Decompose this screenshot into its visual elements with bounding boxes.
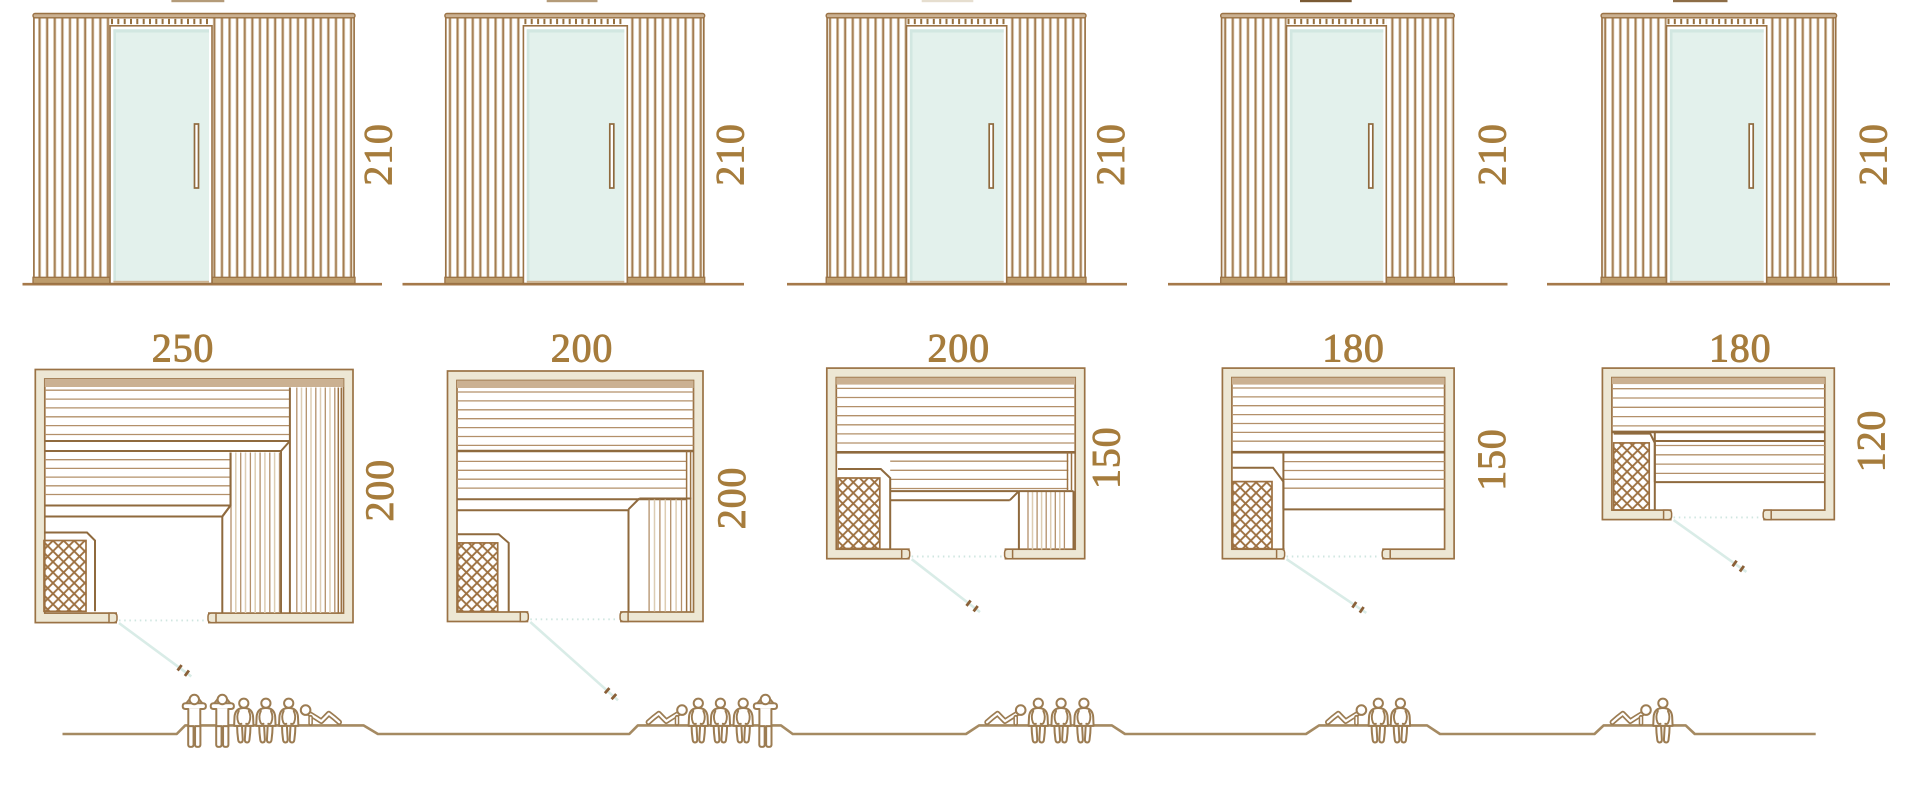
svg-text:180: 180 [1322, 326, 1384, 371]
svg-text:210: 210 [355, 123, 400, 185]
svg-text:180: 180 [1709, 326, 1771, 371]
svg-text:200: 200 [709, 467, 754, 529]
svg-text:150: 150 [1469, 428, 1514, 490]
svg-text:200: 200 [551, 326, 613, 371]
svg-text:150: 150 [1084, 427, 1129, 489]
svg-text:200: 200 [357, 459, 402, 521]
svg-text:210: 210 [1851, 123, 1896, 185]
svg-text:210: 210 [708, 123, 753, 185]
svg-text:210: 210 [1469, 123, 1514, 185]
svg-text:120: 120 [1848, 410, 1893, 472]
svg-text:210: 210 [1088, 123, 1133, 185]
svg-text:250: 250 [152, 326, 214, 371]
svg-text:200: 200 [927, 326, 989, 371]
